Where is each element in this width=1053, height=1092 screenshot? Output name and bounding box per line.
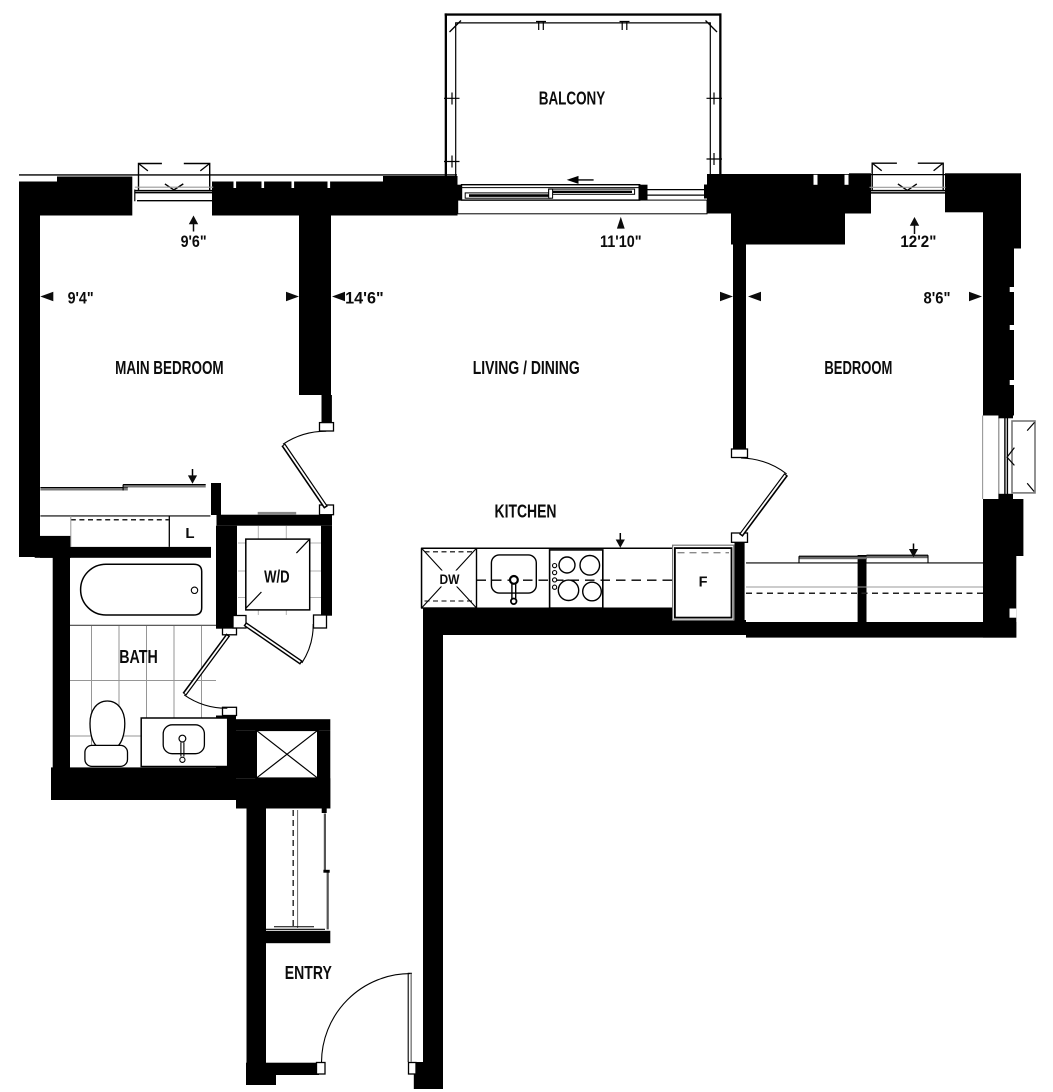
svg-text:11'10": 11'10" — [600, 233, 642, 251]
svg-text:LIVING / DINING: LIVING / DINING — [473, 357, 580, 378]
svg-text:BALCONY: BALCONY — [539, 88, 606, 109]
svg-text:KITCHEN: KITCHEN — [495, 500, 557, 521]
svg-text:12'2": 12'2" — [900, 233, 936, 251]
svg-text:BEDROOM: BEDROOM — [824, 357, 892, 378]
svg-text:DW: DW — [440, 571, 461, 587]
svg-text:9'6": 9'6" — [181, 233, 207, 251]
svg-text:BATH: BATH — [119, 646, 158, 667]
svg-text:14'6": 14'6" — [345, 289, 384, 307]
svg-text:MAIN BEDROOM: MAIN BEDROOM — [115, 357, 224, 378]
svg-text:ENTRY: ENTRY — [285, 962, 332, 983]
svg-text:8'6": 8'6" — [924, 289, 951, 307]
svg-text:9'4": 9'4" — [68, 289, 94, 307]
svg-text:L: L — [185, 525, 194, 542]
svg-text:W/D: W/D — [264, 567, 290, 587]
svg-text:F: F — [699, 575, 708, 591]
